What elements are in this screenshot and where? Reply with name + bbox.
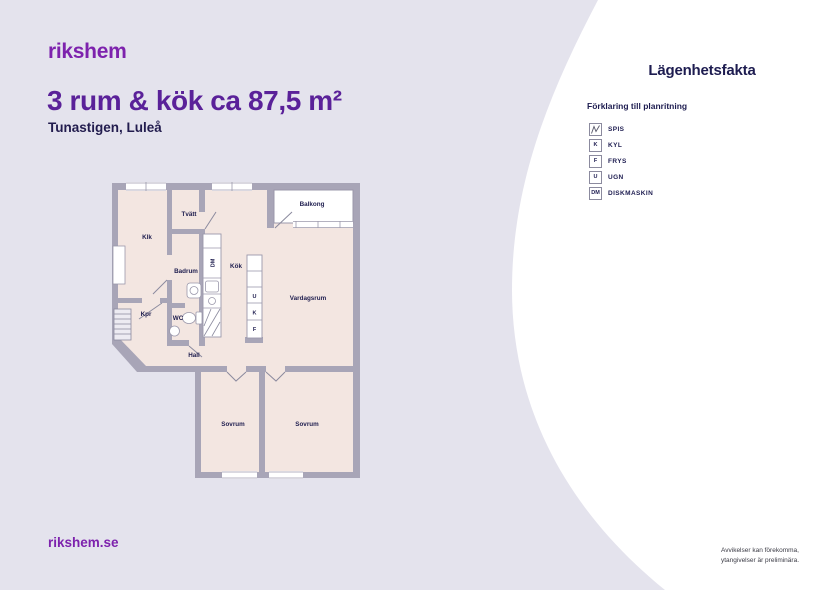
- address-subtitle: Tunastigen, Luleå: [48, 120, 162, 135]
- rikshem-logo: rikshem: [48, 40, 126, 64]
- legend-row-kyl: K KYL: [589, 137, 653, 153]
- room-label-klk: Klk: [142, 234, 152, 241]
- legend-row-spis: SPIS: [589, 121, 653, 137]
- website-link: rikshem.se: [48, 535, 119, 550]
- oven-label: U: [253, 294, 257, 300]
- dishwasher-label: DM: [211, 258, 217, 267]
- legend-row-diskmaskin: DM DISKMASKIN: [589, 185, 653, 201]
- toilet-bowl: [183, 313, 196, 324]
- closet: [113, 246, 125, 284]
- spis-icon: [589, 123, 602, 136]
- room-label-kpr: Kpr: [141, 311, 152, 318]
- ukf-cabinet: U K F: [247, 255, 262, 338]
- room-label-hall: Hall: [188, 352, 200, 359]
- floorplan-drawing: DM U K F: [110, 181, 368, 489]
- room-label-tvatt: Tvätt: [181, 211, 197, 218]
- room-label-vardagsrum: Vardagsrum: [290, 295, 327, 302]
- legend-label: FRYS: [608, 158, 627, 165]
- facts-heading: Lägenhetsfakta: [638, 62, 766, 79]
- legend-label: UGN: [608, 174, 624, 181]
- disclaimer-line2: ytangivelser är preliminära.: [721, 557, 799, 564]
- legend-row-ugn: U UGN: [589, 169, 653, 185]
- disclaimer-text: Avvikelser kan förekomma, ytangivelser ä…: [690, 546, 830, 566]
- room-label-badrum: Badrum: [174, 268, 198, 275]
- room-label-balkong: Balkong: [300, 201, 325, 208]
- legend-label: SPIS: [608, 126, 624, 133]
- floorplan-page: rikshem 3 rum & kök ca 87,5 m² Tunastige…: [0, 0, 835, 590]
- legend: SPIS K KYL F FRYS U UGN DM DISKMASKIN: [589, 121, 653, 201]
- balcony: [274, 190, 353, 228]
- diskmaskin-symbol: DM: [589, 187, 602, 200]
- toilet-tank: [196, 312, 202, 324]
- legend-label: KYL: [608, 142, 622, 149]
- ugn-symbol: U: [589, 171, 602, 184]
- legend-title: Förklaring till planritning: [587, 101, 687, 111]
- room-label-sovrum-left: Sovrum: [221, 421, 245, 428]
- disclaimer-line1: Avvikelser kan förekomma,: [721, 547, 799, 554]
- room-label-kok: Kök: [230, 263, 242, 270]
- entry-stairs: [114, 309, 131, 340]
- fridge-label: K: [253, 311, 257, 317]
- wc-sink: [170, 326, 180, 336]
- room-label-wc: WC: [173, 315, 184, 322]
- frys-symbol: F: [589, 155, 602, 168]
- page-title: 3 rum & kök ca 87,5 m²: [47, 85, 342, 117]
- room-label-sovrum-right: Sovrum: [295, 421, 319, 428]
- legend-label: DISKMASKIN: [608, 190, 653, 197]
- kyl-symbol: K: [589, 139, 602, 152]
- legend-row-frys: F FRYS: [589, 153, 653, 169]
- kitchen-counter: DM: [203, 234, 221, 337]
